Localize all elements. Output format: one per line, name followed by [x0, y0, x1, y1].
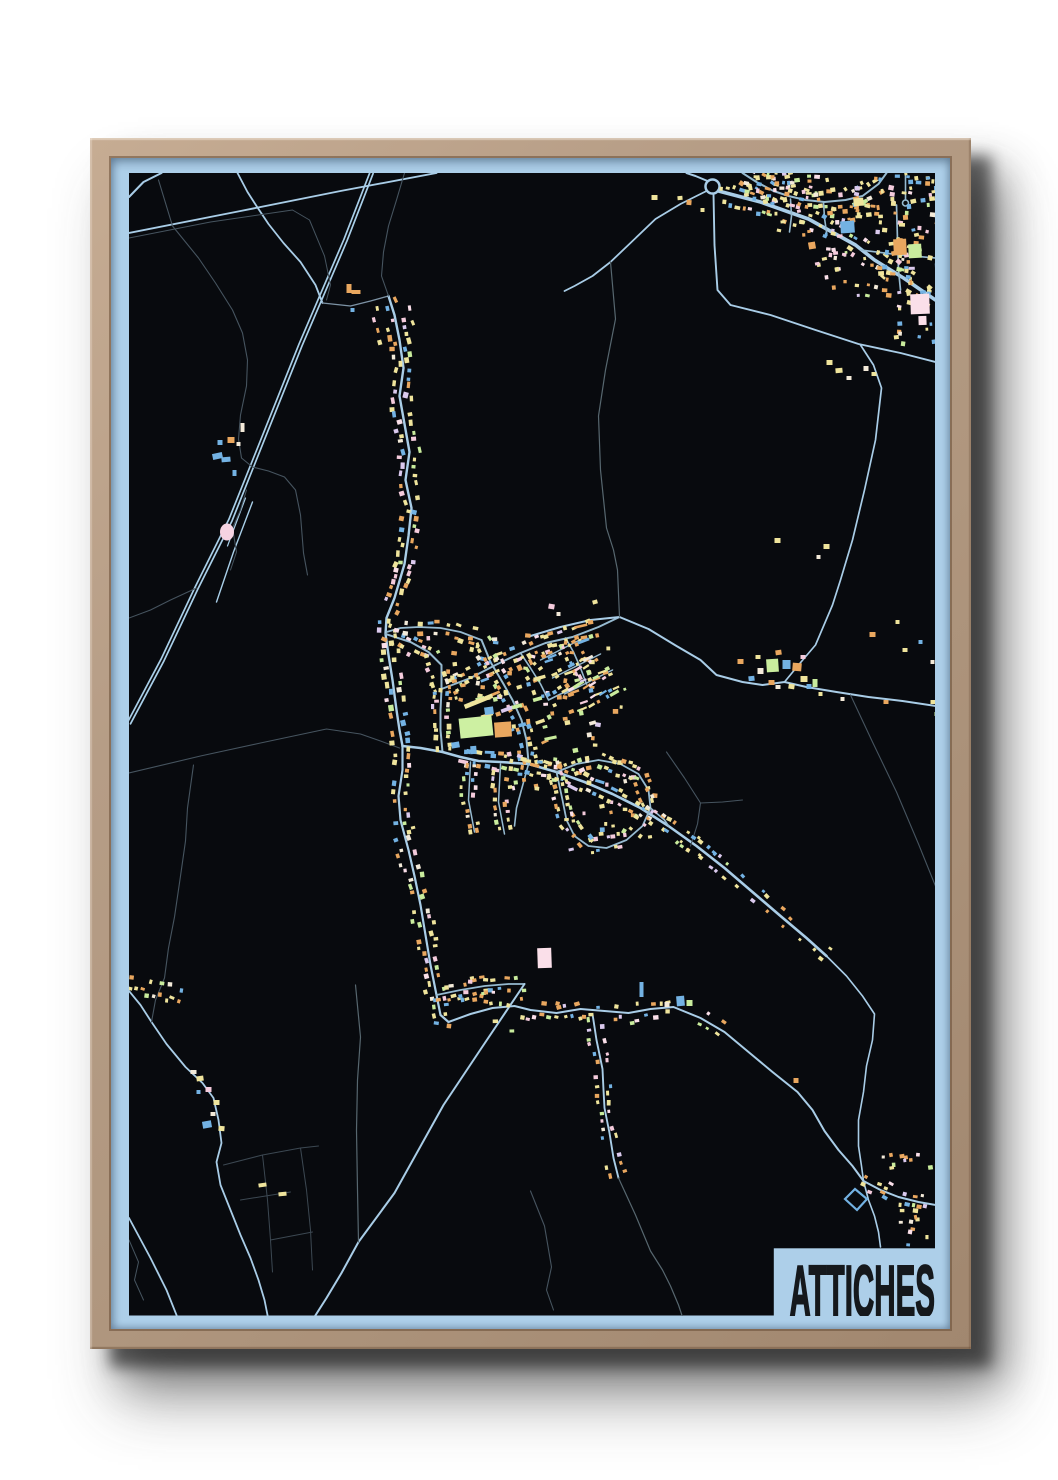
svg-text:ATTICHES: ATTICHES: [789, 1251, 935, 1316]
